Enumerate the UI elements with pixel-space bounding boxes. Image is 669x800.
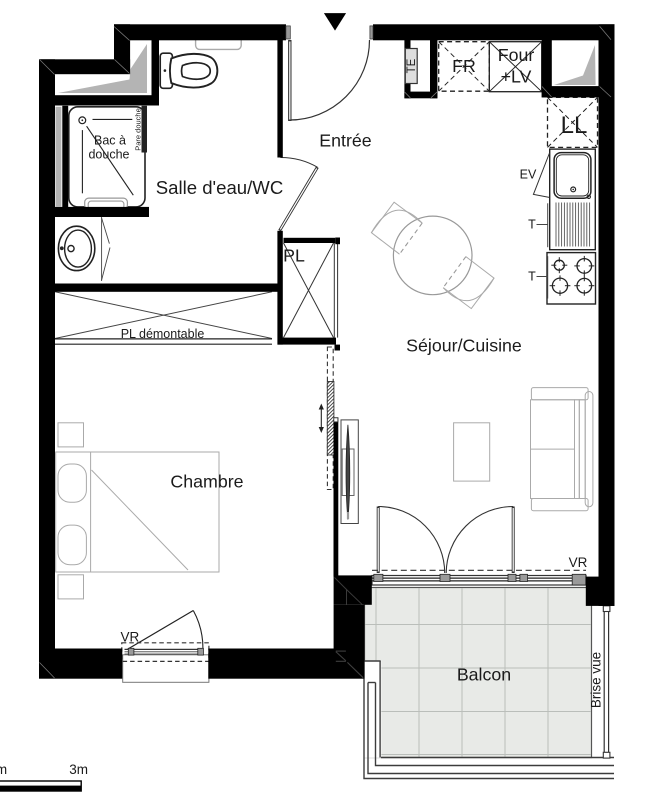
svg-text:LL: LL — [561, 112, 588, 139]
svg-text:T: T — [528, 270, 536, 284]
svg-text:Chambre: Chambre — [170, 472, 243, 492]
svg-text:+LV: +LV — [501, 67, 532, 87]
svg-text:Four: Four — [498, 45, 535, 65]
svg-text:Entrée: Entrée — [319, 131, 371, 151]
svg-text:VR: VR — [569, 555, 588, 570]
svg-text:PL démontable: PL démontable — [121, 327, 205, 341]
svg-text:m: m — [0, 762, 7, 777]
svg-text:Bac à: Bac à — [94, 134, 126, 148]
svg-text:Balcon: Balcon — [457, 665, 511, 685]
svg-text:Brise vue: Brise vue — [589, 652, 604, 708]
svg-text:Séjour/Cuisine: Séjour/Cuisine — [406, 335, 522, 355]
svg-text:TE: TE — [406, 58, 418, 73]
svg-text:Pare douche: Pare douche — [134, 108, 143, 151]
svg-text:PL: PL — [283, 246, 305, 266]
svg-text:T: T — [528, 218, 536, 232]
svg-text:Salle d'eau/WC: Salle d'eau/WC — [156, 177, 284, 198]
svg-text:VR: VR — [121, 630, 140, 645]
svg-text:douche: douche — [88, 148, 129, 162]
svg-text:EV: EV — [520, 168, 537, 182]
svg-text:3m: 3m — [69, 762, 88, 777]
svg-text:FR: FR — [452, 56, 476, 76]
